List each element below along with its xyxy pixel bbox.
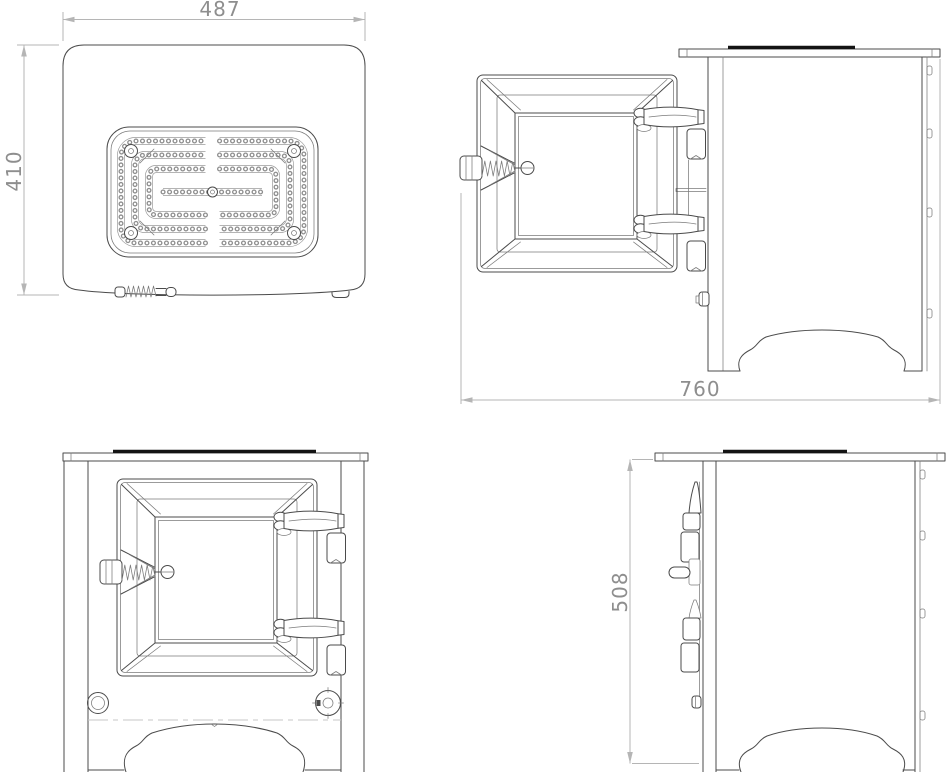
rear-bolts [920, 470, 925, 720]
dim-label-top-depth: 410 [2, 150, 26, 191]
side-view: 508 [608, 451, 945, 772]
front-view [63, 451, 368, 772]
side-body [703, 461, 925, 772]
door-handle-side [669, 559, 700, 585]
dim-label-height: 508 [608, 571, 632, 612]
air-control-left [88, 693, 109, 714]
front-top-plate [63, 453, 368, 461]
dim-top-width: 487 [63, 0, 365, 41]
stove-door-front [100, 479, 346, 676]
top-plate [679, 49, 940, 57]
side-view-door-open: 760 [460, 47, 940, 404]
hotplate-center-screw [208, 187, 218, 197]
dim-label-open-depth: 760 [679, 377, 720, 401]
ash-knob-side [696, 292, 709, 306]
dim-top-depth: 410 [2, 45, 59, 295]
door-hardware-side [669, 482, 701, 708]
side-base-arch [739, 728, 904, 772]
top-view: 487 410 [2, 0, 365, 298]
dim-label-top-width: 487 [199, 0, 240, 21]
front-legs [64, 461, 364, 772]
air-control-dial-right [313, 688, 344, 719]
door-open [460, 75, 706, 272]
dim-height: 508 [608, 460, 699, 764]
stove-body-side [676, 47, 940, 371]
base-arch [739, 330, 906, 371]
front-base-arch [124, 724, 304, 772]
top-view-outline [63, 45, 365, 295]
side-top-plate [655, 453, 945, 461]
door-handle-top-view [115, 286, 176, 297]
rear-bolts [927, 66, 932, 318]
front-foot-tab [332, 292, 349, 298]
latch-keeper [676, 189, 706, 192]
hotplate [107, 127, 318, 257]
ash-knob-side-closed [692, 696, 701, 708]
technical-drawing-page: 487 410 [0, 0, 952, 772]
stove-orthographic-views: 487 410 [0, 0, 952, 772]
